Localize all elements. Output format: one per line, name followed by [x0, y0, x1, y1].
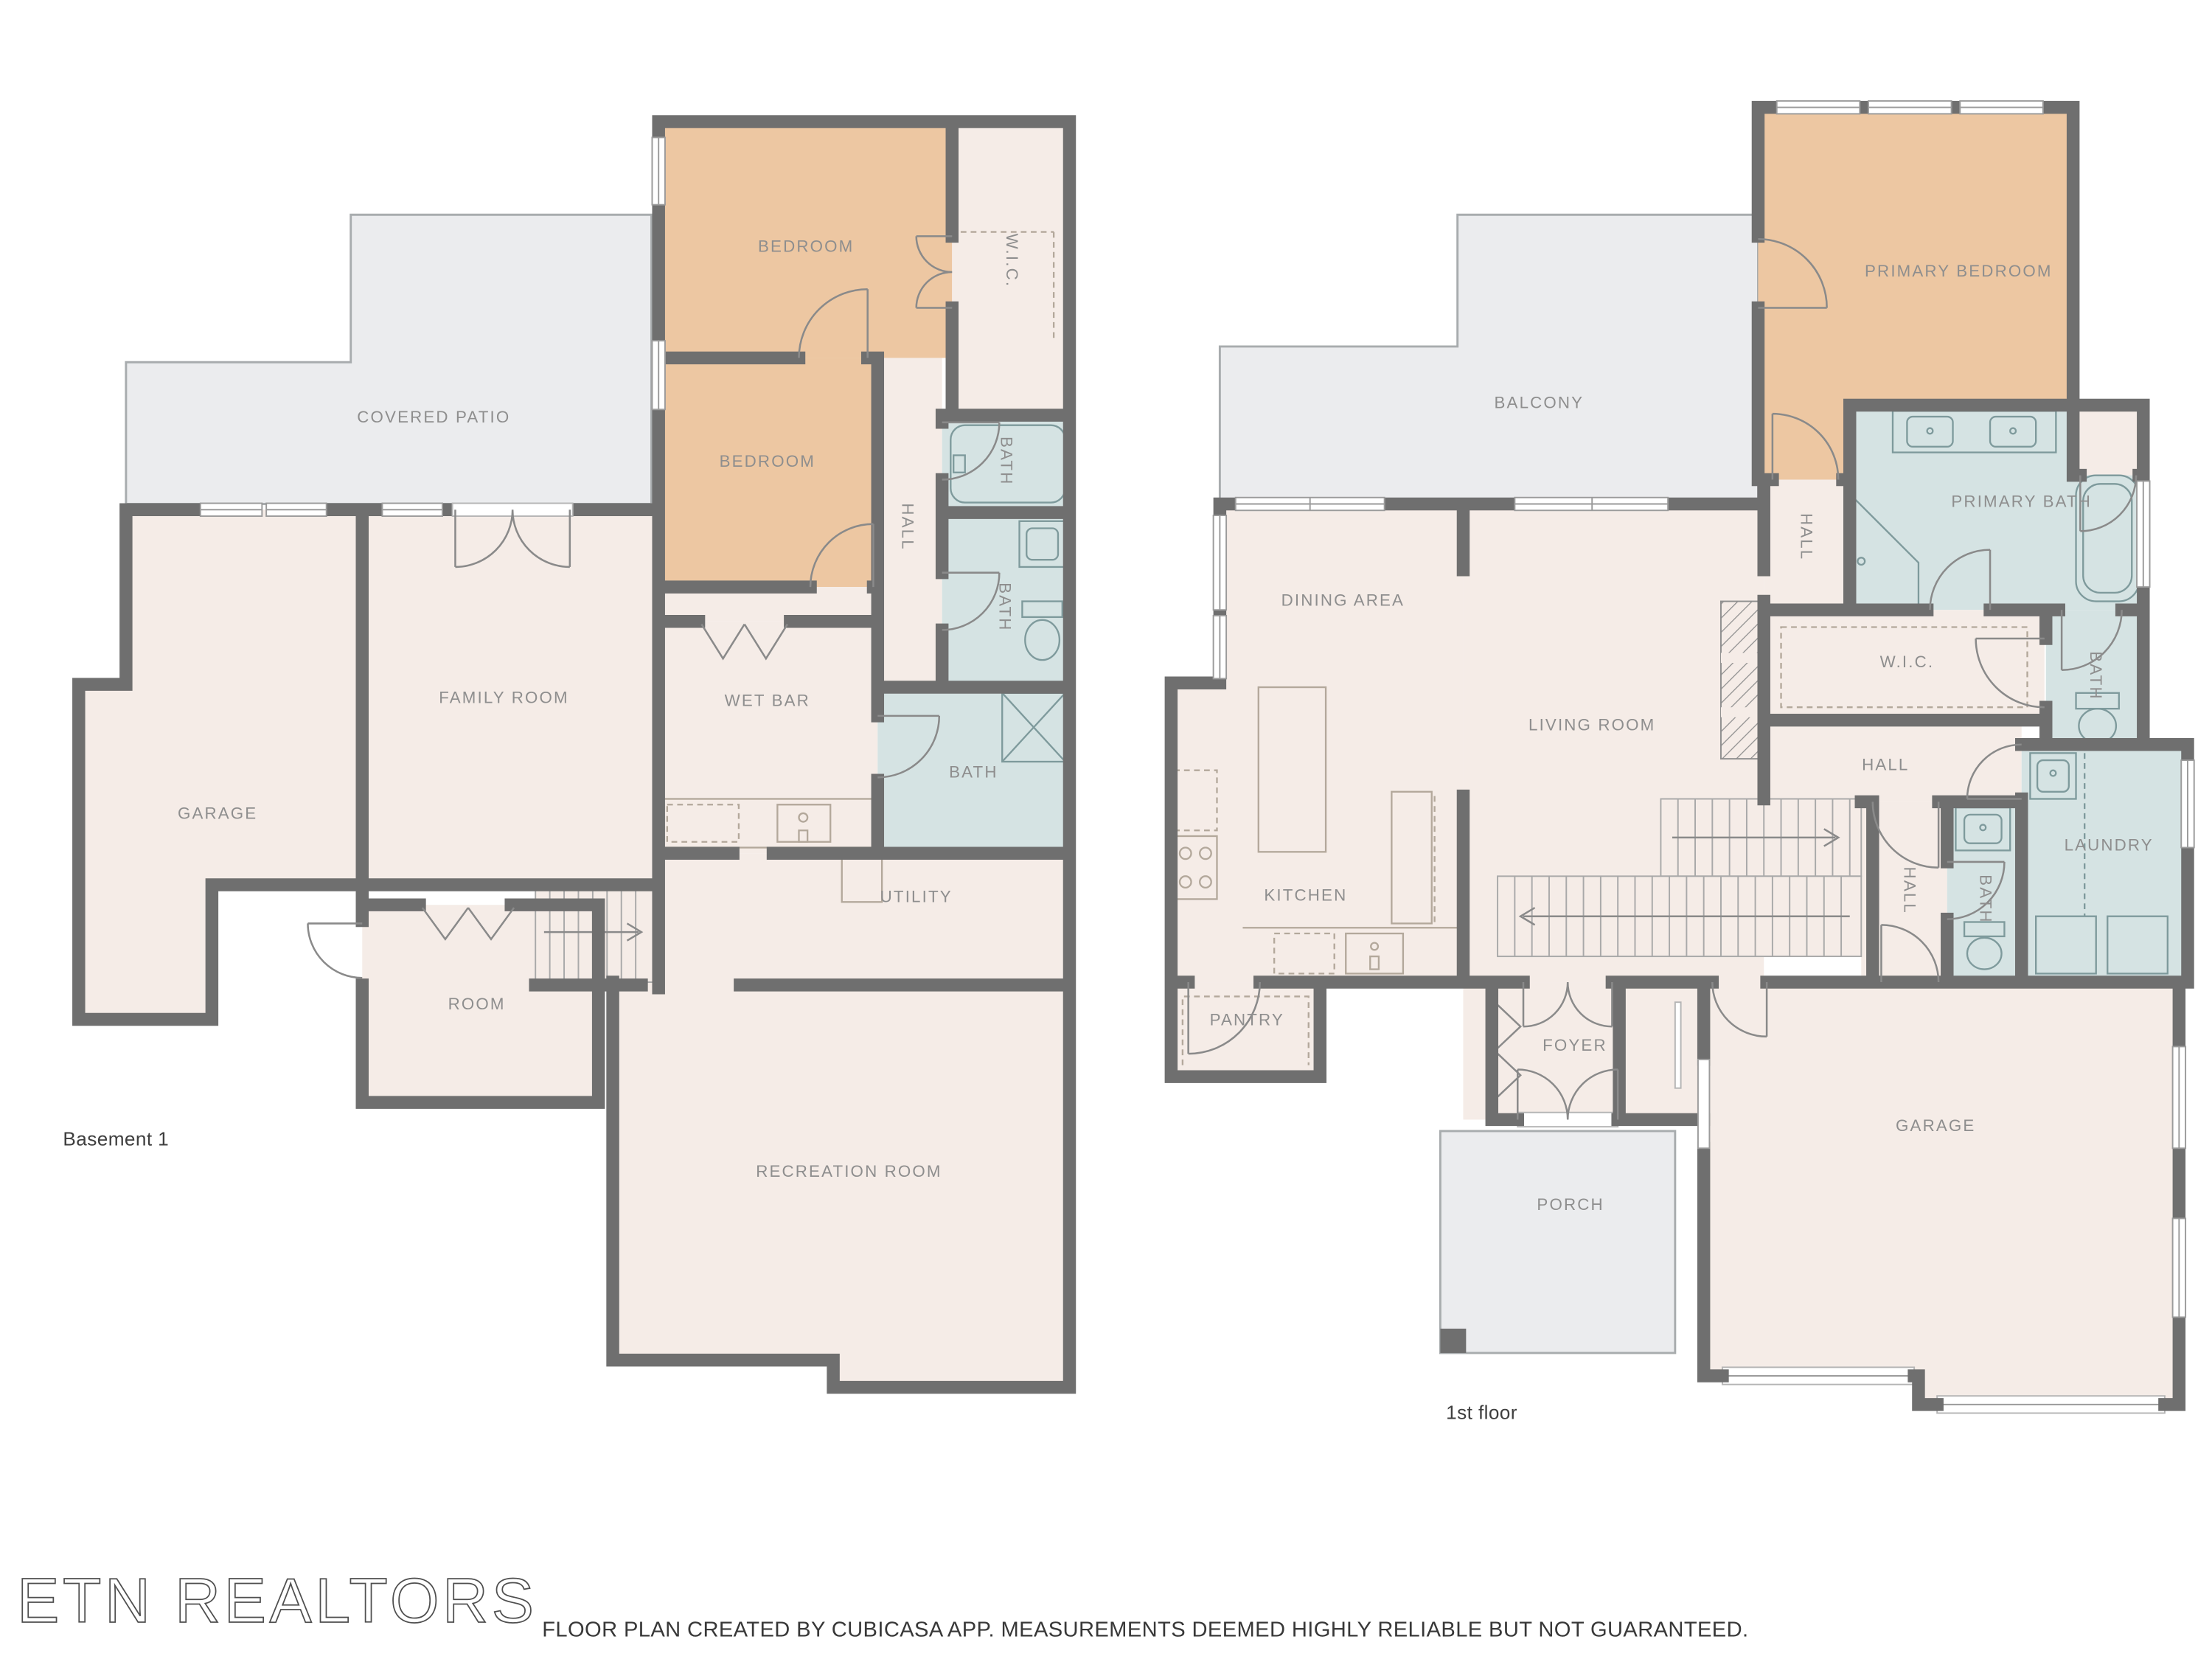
- room-laundry: [2022, 745, 2188, 982]
- room-garage: [1704, 982, 2180, 1405]
- label-bedroom-2: BEDROOM: [720, 452, 815, 470]
- disclaimer-text: FLOOR PLAN CREATED BY CUBICASA APP. MEAS…: [542, 1618, 1748, 1641]
- room-covered-patio: [126, 215, 652, 504]
- footer: ETN REALTORS FLOOR PLAN CREATED BY CUBIC…: [17, 1566, 1748, 1641]
- label-wic: W.I.C.: [1880, 653, 1935, 671]
- label-hall-2: HALL: [1862, 756, 1909, 774]
- porch-post: [1440, 1329, 1466, 1353]
- label-recreation: RECREATION ROOM: [756, 1162, 942, 1180]
- label-laundry: LAUNDRY: [2065, 835, 2154, 854]
- label-dining: DINING AREA: [1281, 591, 1405, 609]
- room-recreation: [613, 982, 1069, 1388]
- room-utility: [658, 853, 1069, 985]
- label-bath-2: BATH: [995, 582, 1014, 631]
- label-wic: W.I.C.: [1003, 234, 1021, 288]
- label-bath-1: BATH: [997, 437, 1015, 485]
- room-porch: [1440, 1131, 1674, 1353]
- room-balcony: [1220, 215, 1758, 504]
- floor-plan-page: BEDROOM W.I.C. BEDROOM BATH HALL BATH CO…: [0, 0, 2212, 1659]
- label-wet-bar: WET BAR: [725, 691, 810, 709]
- label-kitchen: KITCHEN: [1264, 886, 1347, 904]
- label-primary-bath: PRIMARY BATH: [1951, 492, 2092, 510]
- floor-basement: BEDROOM W.I.C. BEDROOM BATH HALL BATH CO…: [63, 122, 1069, 1388]
- label-hall: HALL: [898, 503, 917, 550]
- basement-title: Basement 1: [63, 1127, 169, 1150]
- floor-first: BALCONY PRIMARY BEDROOM PRIMARY BATH HAL…: [1171, 101, 2194, 1423]
- first-floor-title: 1st floor: [1446, 1401, 1517, 1423]
- label-hall-3: HALL: [1901, 867, 1919, 914]
- label-garage: GARAGE: [178, 804, 257, 823]
- label-utility: UTILITY: [880, 887, 953, 905]
- room-bedroom-2: [658, 358, 877, 587]
- room-linen-closet: [2073, 406, 2143, 476]
- label-bedroom-1: BEDROOM: [758, 237, 854, 256]
- label-pantry: PANTRY: [1210, 1010, 1284, 1029]
- label-bath-3: BATH: [949, 762, 998, 781]
- label-garage: GARAGE: [1896, 1116, 1975, 1135]
- label-covered-patio: COVERED PATIO: [357, 408, 510, 426]
- label-bath-2: BATH: [1976, 874, 1994, 923]
- label-family-room: FAMILY ROOM: [439, 688, 569, 706]
- label-porch: PORCH: [1537, 1195, 1604, 1214]
- label-primary-bedroom: PRIMARY BEDROOM: [1865, 262, 2053, 280]
- garage-side-door: [1675, 1002, 1681, 1088]
- watermark-logo: ETN REALTORS: [17, 1566, 537, 1636]
- label-foyer: FOYER: [1543, 1036, 1607, 1054]
- label-bath-1: BATH: [2087, 651, 2105, 700]
- floor-plan-canvas: BEDROOM W.I.C. BEDROOM BATH HALL BATH CO…: [0, 0, 2212, 1659]
- label-living: LIVING ROOM: [1528, 715, 1655, 734]
- fireplace: [1721, 602, 1761, 759]
- label-room: ROOM: [448, 995, 506, 1013]
- label-hall-1: HALL: [1798, 513, 1816, 560]
- label-balcony: BALCONY: [1495, 393, 1585, 411]
